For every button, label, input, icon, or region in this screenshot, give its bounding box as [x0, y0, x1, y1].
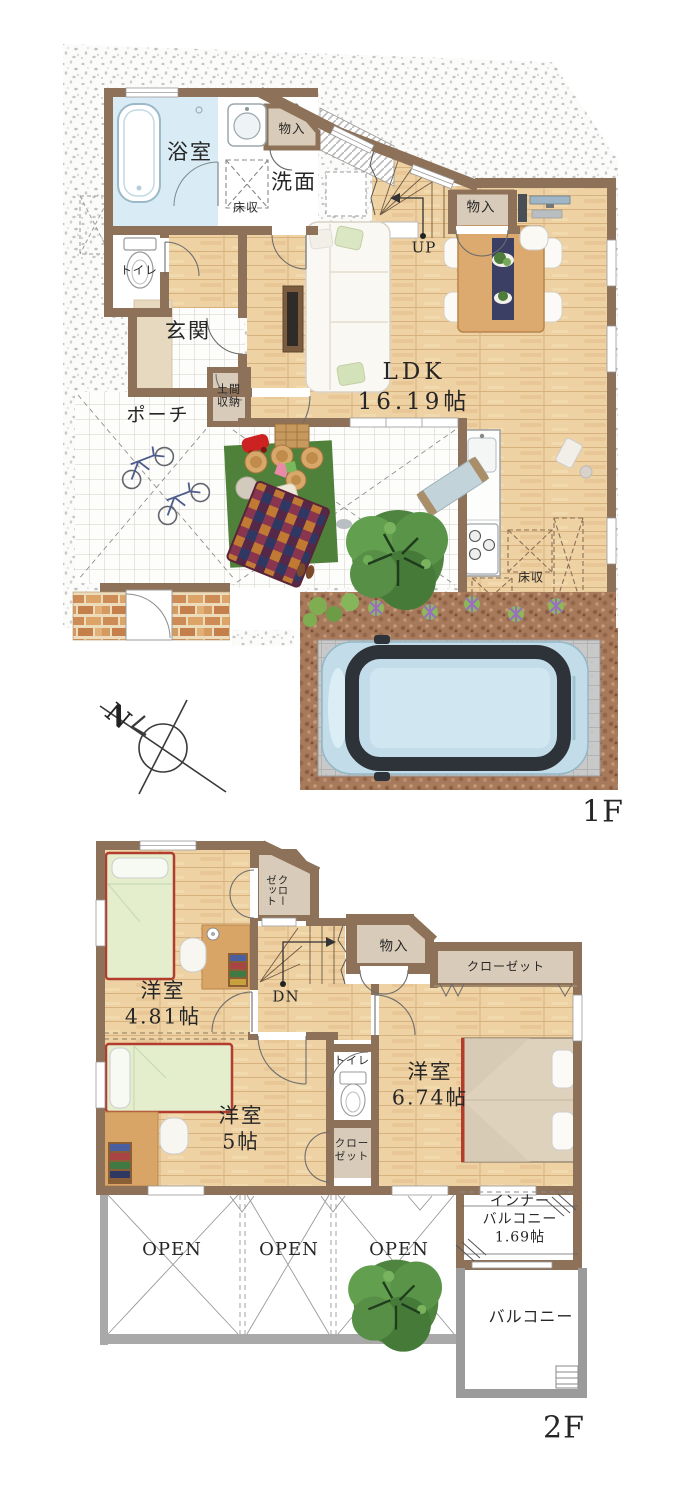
ldk-label: LDK 16.19帖 [358, 358, 471, 418]
floor-plan-artwork: N [0, 0, 690, 1497]
bedroom-west-label: 洋室 4.81帖 [125, 978, 201, 1029]
car-icon [322, 635, 588, 781]
balcony-label: バルコニー [489, 1307, 574, 1327]
open-3-label: OPEN [369, 1239, 429, 1262]
stairs-down-label: DN [272, 988, 299, 1007]
bedroom-main-label: 洋室 6.74帖 [392, 1059, 468, 1110]
compass-icon: N [99, 697, 226, 794]
sink-icon [228, 104, 266, 146]
floor2-label: 2F [543, 1409, 585, 1447]
watering-can-icon [336, 519, 352, 529]
ladder-icon [556, 1366, 578, 1388]
kitchen-counter-icon [464, 430, 500, 576]
storage-ldk-label: 物入 [467, 200, 496, 217]
bathtub-icon [118, 104, 160, 202]
floor-storage-kitchen-label: 床収 [518, 571, 544, 586]
doma-storage-label: 土間 収納 [217, 383, 241, 408]
toilet2-icon [340, 1072, 366, 1116]
toilet1-label: トイレ [120, 263, 158, 277]
closet-main-label: クローゼット [467, 960, 545, 975]
tv-board-icon [283, 286, 303, 352]
toilet2-label: トイレ [334, 1054, 370, 1068]
open-2-label: OPEN [259, 1239, 319, 1262]
floor-plan-page: N [0, 0, 690, 1497]
closet-south-label: クロー ゼット [335, 1137, 370, 1162]
floor1-label: 1F [582, 793, 624, 831]
crate-icon [275, 424, 309, 448]
bed-single-icon [106, 1044, 232, 1112]
washroom-label: 洗面 [271, 169, 317, 195]
shelf-dashed-box [326, 172, 366, 216]
bed-double-icon [461, 1038, 578, 1162]
bed-single-icon [106, 853, 174, 979]
porch-label: ポーチ [126, 404, 189, 428]
stairs-up-label: UP [412, 239, 437, 258]
compass-north-letter: N [99, 697, 136, 735]
open-1-label: OPEN [142, 1239, 202, 1262]
bedroom-south-label: 洋室 5帖 [219, 1103, 264, 1154]
storage-2f-label: 物入 [380, 939, 409, 956]
balcony [456, 1268, 587, 1398]
inner-balcony-label: インナー バルコニー 1.69帖 [483, 1193, 558, 1248]
entrance-label: 玄関 [165, 318, 211, 344]
storage-top-label: 物入 [278, 121, 305, 137]
floor-storage-wash-label: 床収 [233, 201, 259, 216]
bath-label: 浴室 [167, 139, 213, 165]
closet-west-label: クロー ゼット [264, 874, 287, 906]
